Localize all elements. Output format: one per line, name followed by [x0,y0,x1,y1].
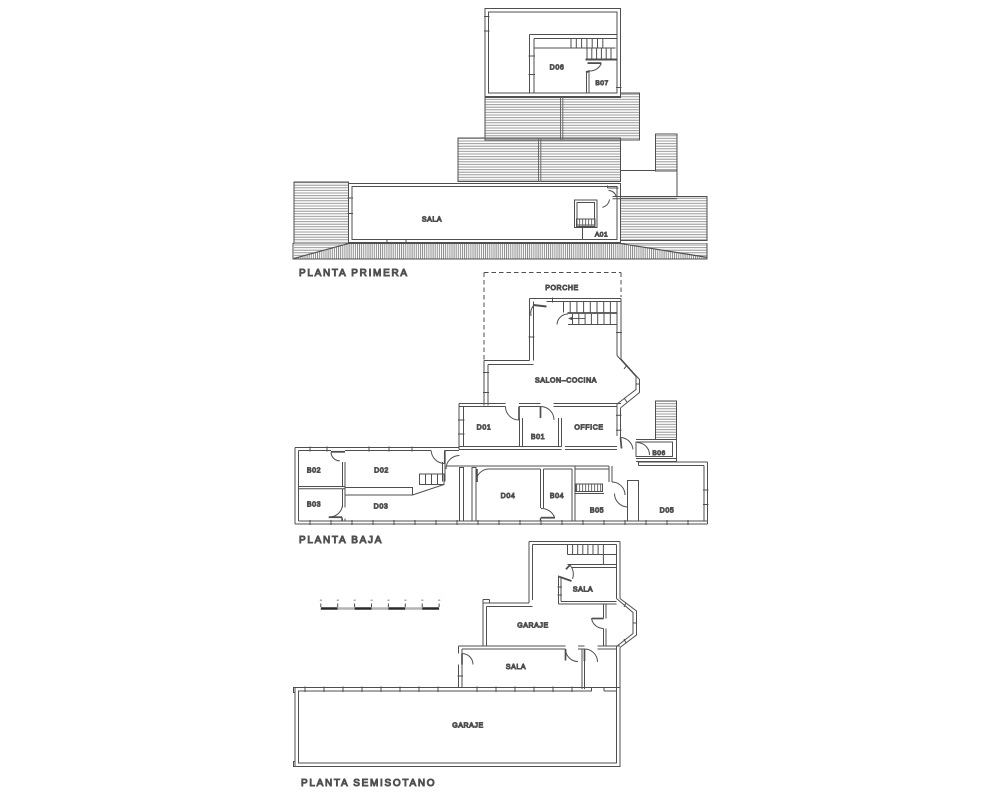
svg-text:D04: D04 [501,493,516,500]
svg-text:B06: B06 [652,450,665,457]
svg-text:PLANTA BAJA: PLANTA BAJA [299,535,383,546]
svg-text:GARAJE: GARAJE [452,723,484,730]
svg-text:SALA: SALA [573,587,593,594]
svg-text:D06: D06 [550,65,565,72]
svg-text:D01: D01 [477,425,492,432]
svg-text:D03: D03 [374,504,389,511]
svg-text:OFFICE: OFFICE [574,425,603,432]
svg-text:B07: B07 [595,80,608,87]
svg-text:SALON–COCINA: SALON–COCINA [535,378,597,385]
svg-text:A01: A01 [595,232,608,239]
svg-text:B03: B03 [307,502,321,509]
svg-text:B01: B01 [531,434,545,441]
svg-text:B04: B04 [550,493,564,500]
svg-text:B05: B05 [590,508,604,515]
svg-text:PORCHE: PORCHE [545,285,579,292]
svg-text:SALA: SALA [422,217,442,224]
svg-text:GARAJE: GARAJE [517,623,549,630]
svg-text:SALA: SALA [506,664,526,671]
svg-text:D02: D02 [374,468,389,475]
svg-text:PLANTA SEMISOTANO: PLANTA SEMISOTANO [301,778,436,789]
svg-text:B02: B02 [307,468,321,475]
svg-text:D05: D05 [660,508,675,515]
svg-text:PLANTA PRIMERA: PLANTA PRIMERA [299,268,409,279]
